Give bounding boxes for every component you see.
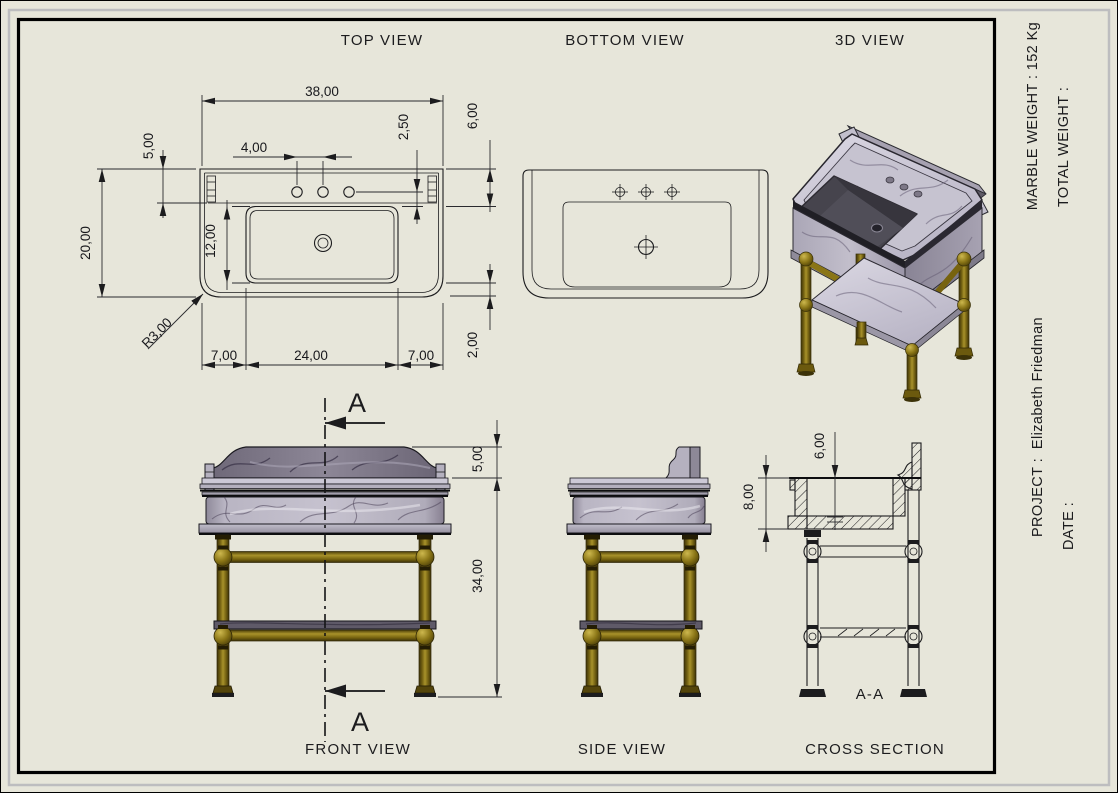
top-view-left-ear (207, 176, 216, 202)
front-ball-lower-left (214, 627, 232, 645)
3d-leg-back-lower (857, 322, 866, 340)
date-label: DATE : (1061, 502, 1077, 550)
3d-view-title: 3D VIEW (835, 32, 905, 49)
side-top-rail (598, 552, 684, 563)
dim-splash-thickness: 5,00 (141, 133, 207, 218)
top-view-outline (200, 169, 443, 297)
side-counter-molding (568, 478, 710, 496)
dim-overall-depth-text: 20,00 (78, 226, 93, 260)
front-view: A A 5,00 34,00 (199, 388, 502, 742)
cs-left-step (790, 480, 795, 490)
side-base-molding (567, 524, 711, 533)
top-view-basin (246, 207, 398, 284)
side-bottom-rail (598, 630, 684, 641)
top-view: 38,00 5,00 20,00 12,00 4,00 (78, 84, 496, 370)
cross-section-view: 8,00 6,00 A-A (741, 432, 927, 703)
dim-deck-depth-text: 6,00 (465, 103, 480, 129)
dim-faucet-offset-text: 2,50 (396, 114, 411, 140)
dim-marble-height: 8,00 (741, 455, 790, 552)
side-backsplash (690, 447, 700, 478)
3d-leg-left (801, 256, 811, 368)
dim-stand-height: 34,00 (438, 478, 502, 697)
top-view-basin-inner (250, 211, 394, 280)
3d-ball-upper-left (799, 252, 813, 266)
dim-marble-height-text: 8,00 (741, 484, 756, 510)
3d-feet (797, 338, 973, 402)
dim-bowl-depth: 6,00 (812, 432, 843, 530)
cs-basin-floor (807, 516, 893, 529)
front-ball-upper-right (416, 548, 434, 566)
front-ball-lower-right (416, 627, 434, 645)
drawing-sheet: TOP VIEW BOTTOM VIEW 3D VIEW FRONT VIEW … (0, 0, 1118, 793)
dim-splash-thickness-text: 5,00 (141, 133, 156, 159)
dim-wall-thickness: 2,00 (446, 264, 496, 358)
side-feet (581, 686, 701, 697)
bottom-view-inner-wall (532, 170, 759, 289)
cross-section-title: CROSS SECTION (805, 741, 945, 758)
top-view-drain (315, 235, 332, 252)
cs-left-base (788, 516, 807, 529)
dim-overall-width-text: 38,00 (305, 84, 339, 99)
bottom-view-faucet-holes (612, 184, 680, 200)
bottom-view-basin-footprint (563, 202, 731, 287)
total-weight-label: TOTAL WEIGHT : (1056, 87, 1072, 207)
dim-faucet-spacing: 4,00 (233, 140, 352, 185)
dim-stand-height-text: 34,00 (470, 559, 485, 593)
dim-basin-depth-text: 12,00 (203, 224, 218, 258)
bottom-view-drain (634, 235, 658, 259)
3d-ball-upper-right (957, 252, 971, 266)
section-line-A: A A (325, 388, 385, 742)
section-letter-bottom: A (351, 707, 369, 737)
cs-left-wall (795, 478, 807, 516)
sheet-borders (1, 1, 1118, 793)
dim-splash-height-text: 5,00 (470, 446, 485, 472)
section-letter-top: A (348, 388, 366, 418)
top-view-right-ear (428, 176, 437, 202)
front-collar-right (417, 535, 433, 540)
dim-corner-radius: R3,00 (139, 294, 203, 351)
cad-sheet-svg: TOP VIEW BOTTOM VIEW 3D VIEW FRONT VIEW … (0, 0, 1118, 793)
dim-corner-radius-text: R3,00 (139, 315, 175, 351)
side-ball-lower-right (681, 627, 699, 645)
top-view-title: TOP VIEW (341, 32, 423, 49)
bottom-view-title: BOTTOM VIEW (565, 32, 685, 49)
3d-view (791, 126, 988, 402)
dim-deck-depth: 6,00 (446, 103, 496, 212)
cs-backsplash (912, 443, 921, 478)
dim-right-rim-text: 7,00 (408, 348, 434, 363)
front-collar-left (215, 535, 231, 540)
3d-ball-lower-right (958, 299, 971, 312)
section-label: A-A (856, 686, 885, 703)
front-view-title: FRONT VIEW (305, 741, 411, 758)
page-edge (1, 1, 1118, 793)
dim-basin-depth: 12,00 (203, 200, 250, 290)
dim-bowl-depth-text: 6,00 (812, 433, 827, 459)
side-shelf-edge (580, 621, 702, 629)
dim-basin-width-text: 24,00 (294, 348, 328, 363)
side-ball-lower-left (583, 627, 601, 645)
3d-ball-lower-front (906, 344, 919, 357)
side-ball-upper-right (681, 548, 699, 566)
project-label: PROJECT : Elizabeth Friedman (1030, 317, 1046, 537)
dim-overall-depth: 20,00 (78, 169, 196, 297)
side-ball-upper-left (583, 548, 601, 566)
front-top-rail (229, 552, 419, 563)
cs-shelf (804, 625, 922, 648)
side-view-title: SIDE VIEW (578, 741, 666, 758)
dim-left-rim-text: 7,00 (211, 348, 237, 363)
title-block: MARBLE WEIGHT : 152 Kg TOTAL WEIGHT : PR… (1025, 22, 1077, 550)
sheet-shadow (9, 10, 1109, 785)
dim-bottom-chain: 7,00 24,00 7,00 (202, 288, 443, 370)
dim-faucet-spacing-text: 4,00 (241, 140, 267, 155)
front-bottom-rail (229, 630, 419, 641)
front-feet (212, 686, 436, 697)
marble-weight-label: MARBLE WEIGHT : 152 Kg (1025, 22, 1041, 210)
side-backsplash-scroll (666, 447, 690, 478)
dim-wall-thickness-text: 2,00 (465, 332, 480, 358)
top-view-faucet-holes (292, 187, 354, 197)
side-view (567, 447, 711, 697)
cs-upper-rail-joints (804, 540, 922, 563)
top-view-inner-wall (205, 173, 439, 293)
front-ball-upper-left (214, 548, 232, 566)
bottom-view (523, 170, 768, 298)
3d-ball-lower-left (800, 299, 813, 312)
3d-drain (872, 224, 883, 232)
